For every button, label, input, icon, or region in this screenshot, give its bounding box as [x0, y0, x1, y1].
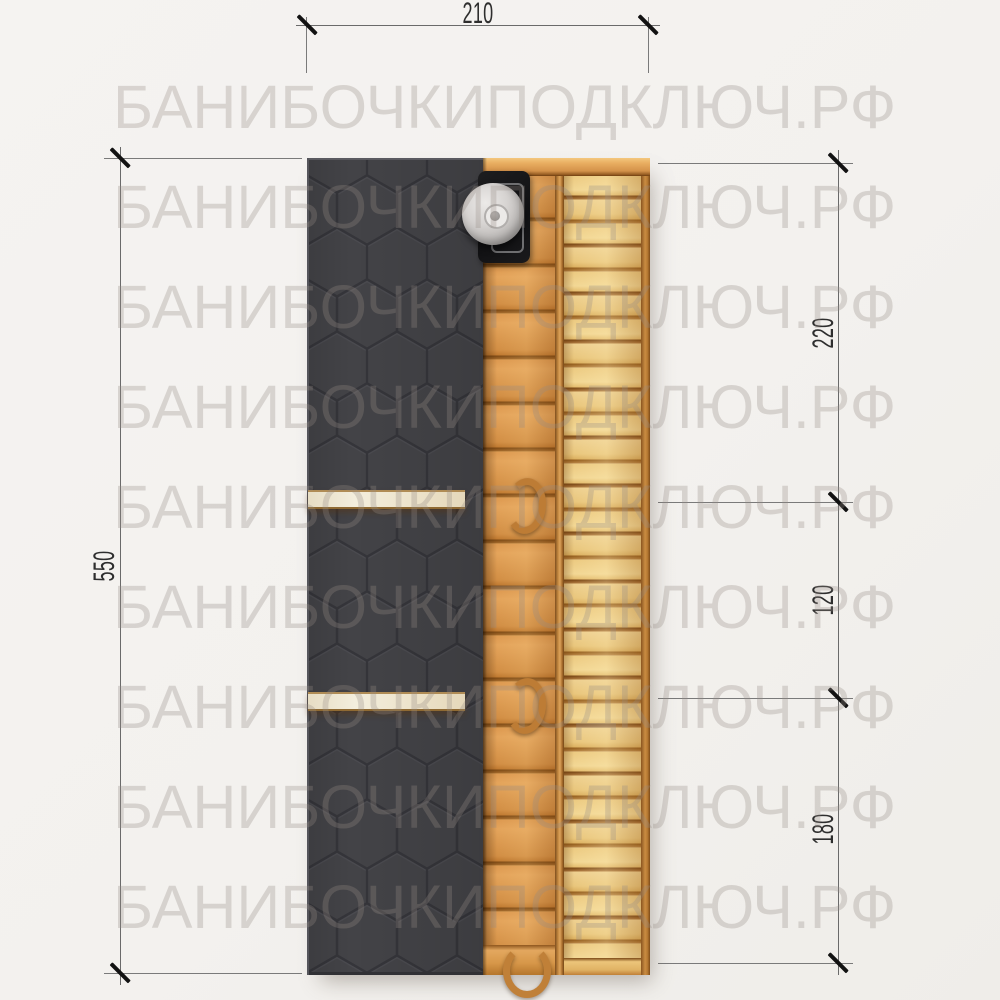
sauna-plan-drawing: 210 550 220 120 180: [0, 0, 1000, 1000]
bottom-wall-plank: [564, 958, 641, 975]
partition-wall-2: [308, 692, 465, 711]
dimension-label-room1: 220: [809, 318, 839, 349]
extension-line: [658, 698, 853, 699]
dimension-label-height: 550: [90, 551, 120, 582]
entrance-door-handle: [503, 944, 551, 998]
wall-plank-column: [564, 176, 641, 958]
right-wall-beam: [641, 176, 650, 975]
partition-wall-1: [308, 490, 465, 509]
dimension-label-width: 210: [463, 0, 494, 29]
roof-shingles: [307, 158, 483, 975]
door-plank-column: [483, 176, 555, 945]
sauna-structure: [307, 158, 650, 975]
extension-line: [658, 163, 853, 164]
chimney-vent-dot: [490, 211, 500, 221]
extension-line: [104, 158, 302, 159]
watermark-row: БАНИБОЧКИПОДКЛЮЧ.РФ: [113, 77, 896, 138]
extension-line: [104, 973, 302, 974]
dimension-label-room2: 120: [809, 585, 839, 616]
wood-interior: [483, 158, 650, 975]
dimension-line: [838, 150, 839, 975]
roof-wood-seam: [483, 158, 487, 975]
extension-line: [658, 963, 853, 964]
center-divider-beam: [555, 176, 564, 975]
dimension-label-room3: 180: [809, 814, 839, 845]
extension-line: [658, 502, 853, 503]
